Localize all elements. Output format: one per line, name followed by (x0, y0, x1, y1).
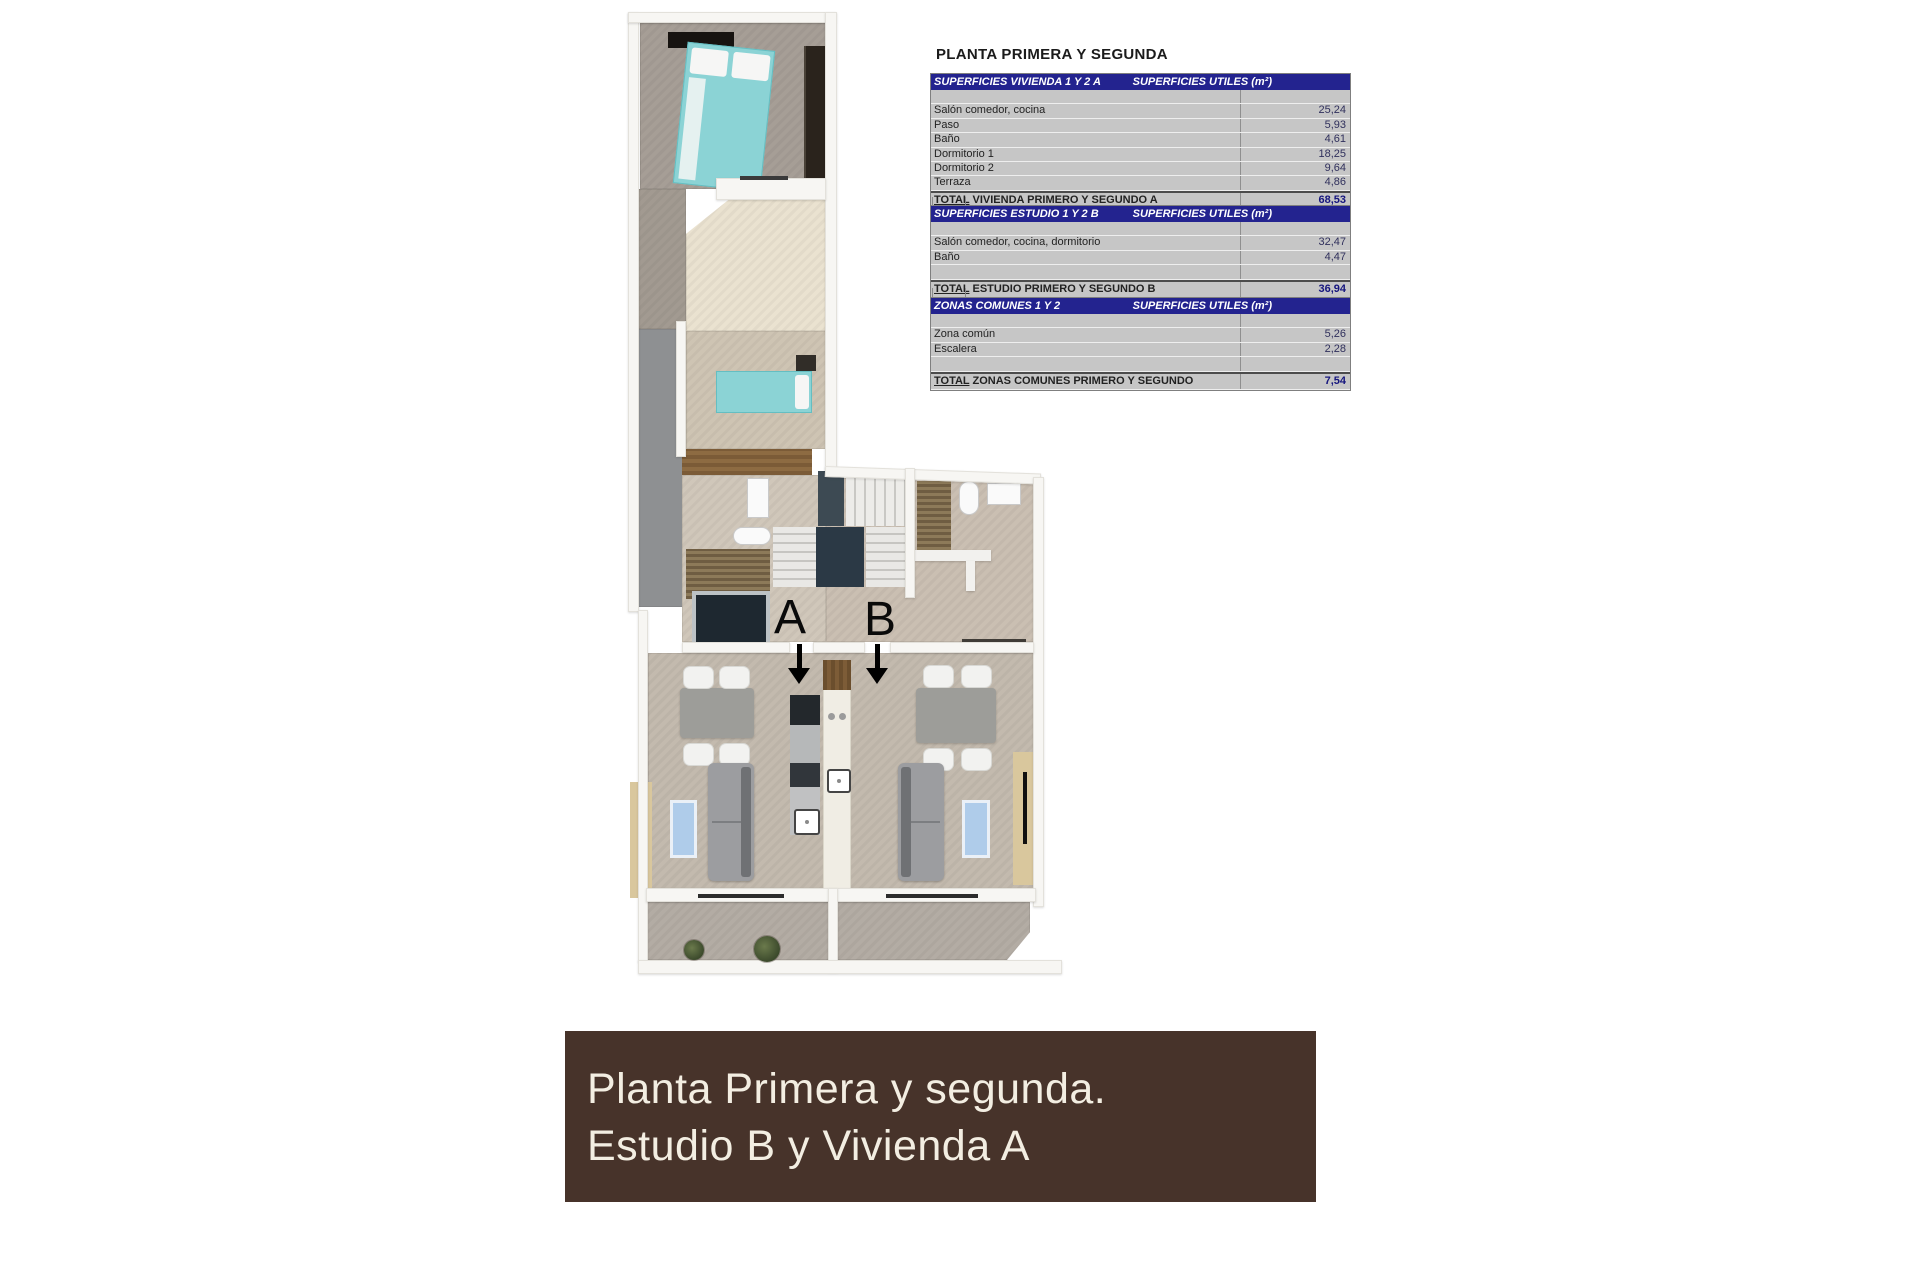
table-header-right: SUPERFICIES UTILES (m²) (1133, 206, 1350, 222)
table-row (931, 357, 1350, 371)
tv-screen-b (1023, 772, 1027, 844)
pillow (731, 52, 771, 82)
kitchen-cabinet-dark (790, 695, 820, 725)
partition-shelf (915, 550, 991, 561)
plant-pot (684, 940, 704, 960)
sliding-door-track (886, 894, 978, 898)
wall-outer-top (628, 12, 836, 23)
cooktop-burner (828, 713, 835, 720)
sink-square-a (794, 809, 820, 835)
spreadsheet-artifact-tick (932, 197, 933, 206)
table-row: Baño4,61 (931, 133, 1350, 147)
sofa-b (898, 763, 944, 881)
toilet-b (959, 481, 979, 515)
sofa-seam (712, 821, 741, 823)
table-total-row: TOTAL ESTUDIO PRIMERO Y SEGUNDO B36,94 (931, 280, 1350, 298)
table-row (931, 90, 1350, 104)
wall-living-top-mid (813, 642, 865, 653)
wall-outer-left-lower (638, 610, 648, 962)
arrow-b-icon (875, 644, 880, 670)
apartment-a-label: A (774, 594, 806, 642)
table-header-left: SUPERFICIES VIVIENDA 1 Y 2 A (934, 74, 1101, 90)
pillow (795, 375, 809, 409)
arrow-a-icon (788, 668, 810, 684)
spreadsheet-artifact-tick (965, 288, 966, 297)
chair (961, 665, 992, 688)
chair (719, 666, 750, 689)
caption-line-1: Planta Primera y segunda. (587, 1061, 1316, 1118)
rug-a (670, 800, 697, 858)
cooktop-burner (839, 713, 846, 720)
sink-a (747, 478, 769, 518)
stairs-flight (773, 527, 817, 587)
bed-single (716, 371, 812, 413)
wall-outer-right-upper (825, 12, 837, 470)
sofa-back-cushions (901, 767, 911, 877)
sheet-title: PLANTA PRIMERA Y SEGUNDA (936, 46, 1168, 63)
table-header: SUPERFICIES ESTUDIO 1 Y 2 B SUPERFICIES … (931, 206, 1350, 222)
left-corridor-floor (638, 189, 686, 329)
table-header-right: SUPERFICIES UTILES (m²) (1133, 74, 1350, 90)
caption-banner: Planta Primera y segunda. Estudio B y Vi… (565, 1031, 1316, 1202)
stairs-landing-dark (818, 471, 844, 526)
shower-mat-b (917, 481, 951, 553)
wardrobe-dark (804, 46, 826, 180)
table-row: Dormitorio 29,64 (931, 162, 1350, 176)
bed-double (673, 42, 775, 192)
table-row (931, 222, 1350, 236)
wall-bedroom-terraza (716, 178, 826, 200)
table-row: Paso5,93 (931, 119, 1350, 133)
wardrobe-wood-strip (682, 449, 812, 475)
sofa-back-cushions (741, 767, 751, 877)
chair (961, 748, 992, 771)
table-header-left: SUPERFICIES ESTUDIO 1 Y 2 B (934, 206, 1099, 222)
wall-outer-right-lower (1033, 477, 1044, 907)
sofa-seam (911, 821, 940, 823)
table-body: Zona común5,26Escalera2,28TOTAL ZONAS CO… (931, 314, 1350, 390)
table-row: Zona común5,26 (931, 328, 1350, 342)
oven-dark (790, 763, 820, 787)
sliding-door-track (698, 894, 784, 898)
dining-table-b (916, 688, 996, 743)
table-superficies-vivienda: SUPERFICIES VIVIENDA 1 Y 2 A SUPERFICIES… (930, 73, 1351, 210)
table-row: Salón comedor, cocina25,24 (931, 104, 1350, 118)
table-header: ZONAS COMUNES 1 Y 2 SUPERFICIES UTILES (… (931, 298, 1350, 314)
table-row: Salón comedor, cocina, dormitorio32,47 (931, 236, 1350, 250)
table-zonas-comunes: ZONAS COMUNES 1 Y 2 SUPERFICIES UTILES (… (930, 297, 1351, 391)
wall-outer-bottom (638, 960, 1062, 974)
table-row (931, 265, 1350, 279)
terraza-floor (686, 198, 826, 331)
table-row: Baño4,47 (931, 251, 1350, 265)
toilet-a (733, 527, 771, 545)
table-body: Salón comedor, cocina, dormitorio32,47Ba… (931, 222, 1350, 298)
balustrade-dark (740, 176, 788, 180)
sink-b (987, 483, 1021, 505)
table-body: Salón comedor, cocina25,24Paso5,93Baño4,… (931, 90, 1350, 209)
wall-bedroom2-left (676, 321, 686, 457)
spreadsheet-artifact-tick (965, 197, 966, 206)
sofa-a (708, 763, 754, 881)
spreadsheet-artifact-tick (932, 288, 933, 297)
stairs-flight (866, 527, 906, 587)
table-superficies-estudio: SUPERFICIES ESTUDIO 1 Y 2 B SUPERFICIES … (930, 205, 1351, 299)
caption-line-2: Estudio B y Vivienda A (587, 1118, 1316, 1175)
wall-living-top-b (890, 642, 1034, 653)
apartment-b-label: B (864, 596, 896, 644)
chair (683, 743, 714, 766)
rug-b (962, 800, 990, 858)
dining-table-a (680, 688, 754, 738)
table-row: Dormitorio 118,25 (931, 148, 1350, 162)
table-row (931, 314, 1350, 328)
wall-outer-left (628, 12, 639, 612)
arrow-a-icon (797, 644, 802, 670)
table-header-right: SUPERFICIES UTILES (m²) (1133, 298, 1350, 314)
wall-bath-divider (905, 468, 915, 598)
kitchen-cabinet-steel (790, 725, 820, 763)
bed-sheet (678, 77, 706, 180)
plant-pot (754, 936, 780, 962)
table-total-row: TOTAL ZONAS COMUNES PRIMERO Y SEGUNDO7,5… (931, 372, 1350, 390)
arrow-b-icon (866, 668, 888, 684)
page: { "header": { "title": "PLANTA PRIMERA Y… (0, 0, 1920, 1280)
table-row: Escalera2,28 (931, 343, 1350, 357)
table-header: SUPERFICIES VIVIENDA 1 Y 2 A SUPERFICIES… (931, 74, 1350, 90)
island-wood-top (823, 660, 851, 690)
chair (923, 665, 954, 688)
partition-shelf-stub (966, 561, 975, 591)
kitchen-island-b (823, 660, 851, 900)
kitchen-counter-a (790, 695, 820, 835)
table-header-left: ZONAS COMUNES 1 Y 2 (934, 298, 1060, 314)
chair (683, 666, 714, 689)
sink-square-b (827, 769, 851, 793)
table-row: Terraza4,86 (931, 176, 1350, 190)
wall-living-top-a (682, 642, 790, 653)
stairs-landing-dark2 (816, 527, 864, 587)
bed-single-headboard (796, 355, 816, 371)
pillow (689, 47, 729, 77)
